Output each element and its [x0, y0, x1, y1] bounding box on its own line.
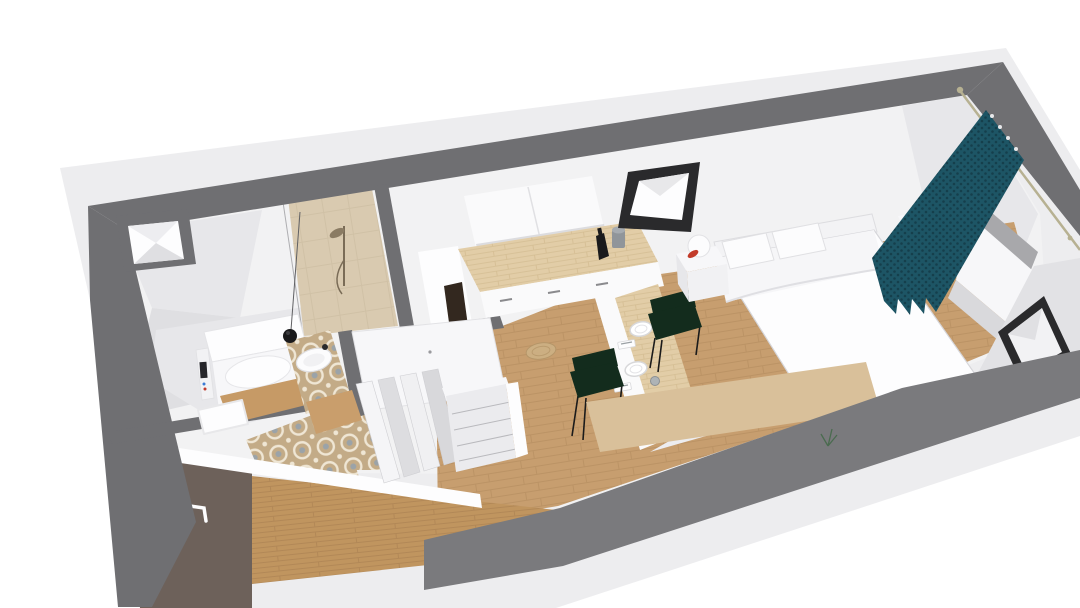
curtain-hook [990, 114, 994, 118]
cup[interactable] [651, 377, 660, 386]
curtain-hook [998, 125, 1002, 129]
roof-window-back[interactable] [618, 162, 700, 232]
roof-skylight-well[interactable] [116, 209, 196, 272]
chest-of-drawers[interactable] [442, 377, 528, 472]
curtain-hook [1006, 136, 1010, 140]
faucet[interactable] [322, 344, 328, 350]
scene-canvas [0, 0, 1080, 608]
wardrobe-handle [428, 350, 431, 353]
curtain-hook [1014, 147, 1018, 151]
floorplan-render [0, 0, 1080, 608]
canister[interactable] [612, 227, 625, 249]
